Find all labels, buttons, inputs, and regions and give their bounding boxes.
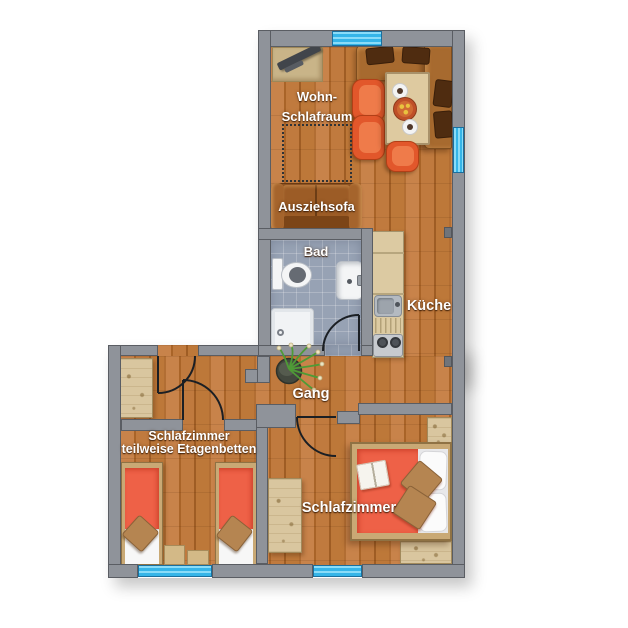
toilet-seat (289, 267, 306, 283)
wall-upper-left (258, 30, 271, 356)
kitchen-faucet-icon (395, 302, 400, 307)
label-sofa-bed: Ausziehsofa (271, 200, 362, 214)
sofa-fold-out-area (282, 124, 352, 182)
shower-drain (277, 329, 284, 336)
window-bottom-right (313, 565, 362, 577)
counter-drainer (375, 318, 401, 333)
wall-hall-top-right (198, 345, 260, 356)
room-label-hallway: Gang (286, 387, 336, 402)
plate-center (397, 88, 403, 94)
room-label-living-line2: Schlafraum (277, 110, 357, 124)
window-right (453, 127, 464, 173)
wall-stub-kitchen-top (444, 227, 452, 238)
wall-gang-south-b (358, 403, 452, 415)
nightstand (164, 545, 185, 565)
bench-cushion (365, 46, 395, 66)
room-label-kitchen: Küche (404, 299, 454, 314)
nightstand (187, 550, 209, 565)
room-label-bunkroom-line2: teilweise Etagenbetten (119, 443, 259, 456)
open-book (356, 460, 390, 491)
dining-chair-seat (359, 122, 381, 153)
floor-plan: Wohn- Schlafraum Ausziehsofa Bad Küche G… (0, 0, 628, 628)
kitchen-sink-basin (377, 298, 394, 314)
room-label-bathroom: Bad (286, 245, 346, 259)
room-label-bedroom: Schlafzimmer (299, 501, 399, 516)
window-bottom-left (138, 565, 212, 577)
wall-corner-block (256, 404, 296, 428)
wall-bath-south (258, 345, 325, 356)
wall-bottom-a (108, 564, 138, 578)
bathroom-threshold (325, 345, 361, 356)
wall-lower-left (108, 345, 121, 578)
wall-bedroom-divider (256, 404, 268, 564)
entrance-threshold (158, 345, 198, 356)
stove-burner (390, 337, 401, 348)
wall-bath-east (361, 228, 373, 356)
stove-burner (377, 337, 388, 348)
wall-shelf (400, 541, 452, 564)
window-top (332, 31, 382, 46)
bench-cushion (433, 110, 454, 139)
wall-bottom-b (212, 564, 313, 578)
plate-center (407, 124, 413, 130)
wall-bottom-c (362, 564, 465, 578)
wall-stub-kitchen-bottom (444, 356, 452, 367)
wall-gang-south-a (337, 411, 360, 424)
dining-chair-seat (359, 85, 381, 115)
hall-wardrobe (118, 358, 153, 418)
bedroom-wardrobe (268, 478, 302, 553)
washbasin-drain (347, 279, 352, 284)
wall-bath-se-corner (361, 345, 373, 356)
dining-chair-seat (392, 146, 414, 166)
room-label-living-line1: Wohn- (277, 90, 357, 104)
wall-stub-foot (245, 369, 258, 383)
food (397, 101, 413, 117)
wall-stub-below-bath (257, 356, 270, 383)
bench-cushion (401, 46, 430, 65)
counter-divider (372, 252, 404, 254)
wall-bath-north (258, 228, 373, 240)
